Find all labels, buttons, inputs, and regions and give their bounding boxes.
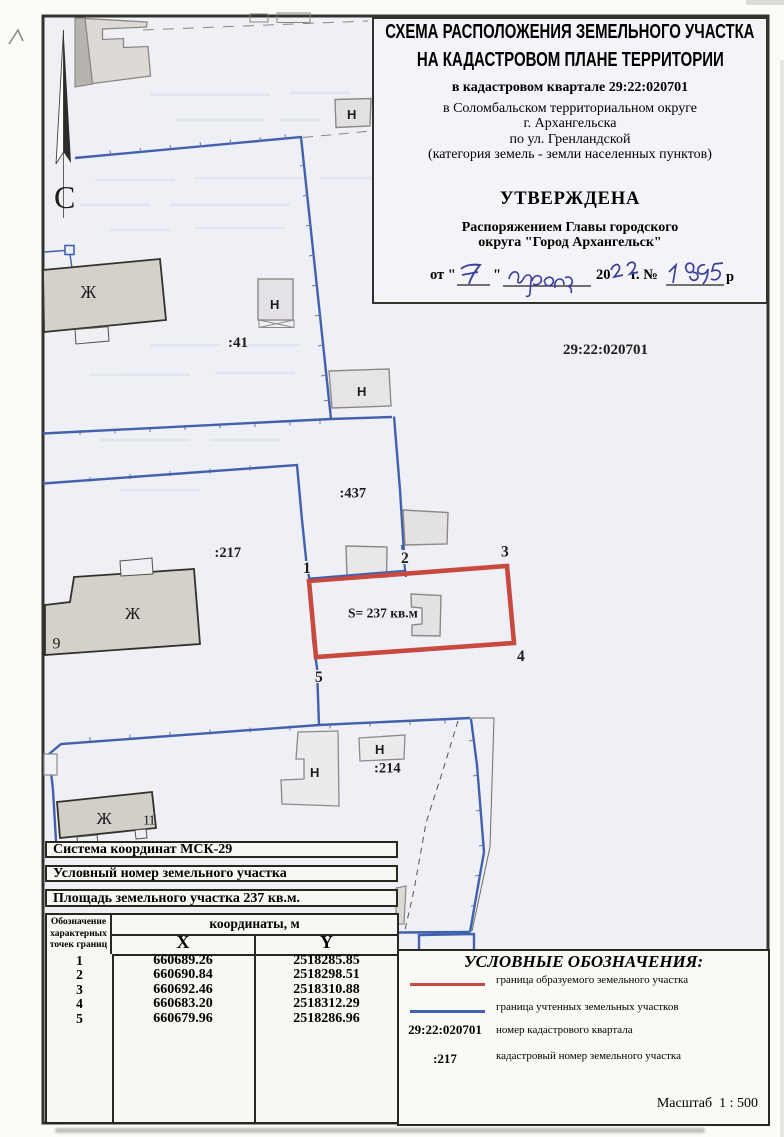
svg-text:S= 237 кв.м: S= 237 кв.м (348, 606, 418, 621)
svg-text:Н: Н (310, 765, 319, 780)
svg-text:Н: Н (357, 384, 366, 399)
svg-text:4: 4 (517, 648, 525, 665)
svg-text::214: :214 (374, 761, 401, 777)
svg-text:2: 2 (401, 550, 409, 567)
svg-text:Н: Н (375, 742, 384, 757)
svg-text::41: :41 (228, 335, 248, 351)
svg-text:11: 11 (143, 814, 155, 829)
svg-text:Н: Н (270, 297, 279, 312)
svg-text::437: :437 (340, 486, 367, 502)
svg-text:5: 5 (315, 669, 323, 686)
svg-text:Ж: Ж (81, 282, 97, 302)
svg-text:Ж: Ж (97, 809, 113, 828)
svg-text:29:22:020701: 29:22:020701 (563, 342, 648, 358)
svg-text:3: 3 (501, 544, 509, 561)
svg-text::217: :217 (215, 545, 242, 561)
svg-text:С: С (54, 179, 75, 215)
svg-text:Ж: Ж (125, 604, 141, 623)
svg-text:1: 1 (303, 560, 311, 577)
svg-text:9: 9 (53, 636, 61, 653)
svg-text:Н: Н (347, 107, 356, 122)
